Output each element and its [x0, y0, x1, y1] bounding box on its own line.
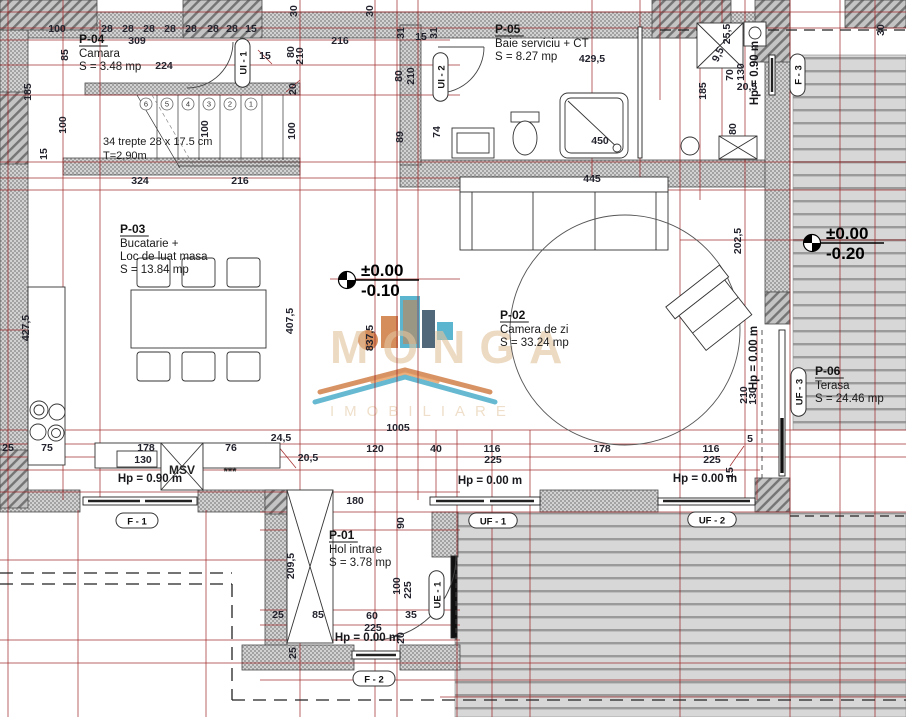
- dimension-label: 25: [2, 442, 14, 454]
- toilet-bowl: [513, 121, 537, 155]
- height-marker-label: Hp = 0.90 m: [749, 41, 761, 105]
- dimension-label: 309: [128, 35, 146, 47]
- room-label-line: Loc de luat masa: [120, 251, 208, 263]
- room-label-line: Camera de zi: [500, 324, 568, 336]
- stair-note-line2: T=2,90m: [103, 150, 147, 162]
- dimension-label: 20: [287, 83, 299, 95]
- room-id-label: P-02: [500, 308, 526, 322]
- dimension-label: 28: [143, 23, 155, 35]
- dimension-label: 120: [366, 443, 384, 455]
- dimension-label: 130: [735, 63, 747, 81]
- dimension-label: 450: [591, 135, 609, 147]
- dimension-label: 5: [747, 433, 753, 445]
- room-label-line: S = 13.84 mp: [120, 264, 189, 276]
- dimension-label: 30: [288, 5, 300, 17]
- cooktop-burner: [30, 424, 46, 440]
- armchair: [666, 265, 756, 353]
- dimension-label: 85: [312, 609, 324, 621]
- level-marker-quadrant: [347, 280, 356, 289]
- step-number: 1: [249, 100, 253, 109]
- dimension-label: 180: [346, 495, 364, 507]
- stars-label: ***: [224, 466, 238, 478]
- dimension-label: 178: [593, 443, 611, 455]
- dimension-label: 100: [199, 120, 211, 138]
- chair: [227, 258, 260, 287]
- room-label-line: Bucatarie +: [120, 238, 179, 250]
- room-id-label: P-06: [815, 364, 841, 378]
- room-label-line: S = 8.27 mp: [495, 51, 557, 63]
- room-label-line: S = 3.78 mp: [329, 557, 391, 569]
- sofa-seat: [460, 192, 668, 250]
- level-marker: ±0.00-0.10: [339, 261, 420, 300]
- opening-tag-label: F - 2: [364, 675, 384, 686]
- opening-tag: F - 3: [790, 54, 805, 96]
- level-below-value: -0.10: [361, 281, 400, 300]
- dimension-label: 216: [331, 35, 349, 47]
- step-number: 4: [186, 100, 190, 109]
- dimension-label: 216: [231, 175, 249, 187]
- chair: [227, 352, 260, 381]
- opening-tag-label: F - 3: [794, 65, 805, 85]
- room-id-label: P-01: [329, 528, 355, 542]
- dimension-label: 89: [394, 131, 406, 143]
- room-label-line: Baie serviciu + CT: [495, 38, 589, 50]
- dimension-label: 1005: [386, 422, 410, 434]
- opening-tag: UF - 2: [688, 512, 736, 527]
- opening-tag-label: UI - 2: [437, 65, 448, 88]
- opening-tag: UI - 1: [235, 39, 250, 87]
- dimension-label: 31: [395, 27, 407, 39]
- room-label-line: S = 3.48 mp: [79, 61, 141, 73]
- dimension-label: 837,5: [364, 325, 376, 351]
- dimension-label: 15: [38, 148, 50, 160]
- cooktop-burner: [49, 404, 65, 420]
- dimension-label: 25,5: [721, 24, 733, 45]
- opening-tag: F - 1: [116, 513, 158, 528]
- toilet-tank: [511, 112, 539, 122]
- opening-tag: UI - 2: [433, 53, 448, 101]
- dimension-label: 35: [405, 609, 417, 621]
- opening-tag-label: UI - 1: [239, 51, 250, 75]
- dimension-label: 80: [727, 123, 739, 135]
- opening-tag-label: UF - 1: [480, 517, 507, 528]
- dimension-label: 30: [364, 5, 376, 17]
- watermark-logo: MONGA IMOBILIARE: [315, 296, 576, 420]
- height-marker-label: Hp = 0.00 m: [335, 632, 399, 644]
- dimension-label: 224: [155, 60, 173, 72]
- sofa-back: [460, 177, 668, 192]
- level-marker-quadrant: [339, 272, 348, 281]
- counter-segment: [203, 443, 280, 468]
- dimension-label: 85: [59, 49, 71, 61]
- room-label-line: Terasa: [815, 380, 850, 392]
- height-marker-label: Hp = 0.90 m: [118, 473, 182, 485]
- opening-tag: F - 2: [353, 671, 395, 686]
- opening-tag-label: UE - 1: [433, 581, 444, 609]
- dimension-label: 225: [484, 454, 502, 466]
- watermark-subword: IMOBILIARE: [330, 403, 516, 420]
- dimension-label: 74: [431, 126, 443, 138]
- dimension-label: 15: [259, 50, 271, 62]
- dimension-label: 225: [402, 581, 414, 599]
- dimension-label: 15: [415, 31, 427, 43]
- step-number: 2: [228, 100, 232, 109]
- dining-table: [131, 290, 266, 348]
- dimension-label: 427,5: [20, 315, 32, 341]
- opening-tag: UF - 1: [469, 513, 517, 528]
- dimension-label: 324: [131, 175, 149, 187]
- dimension-label: 178: [137, 442, 155, 454]
- dimension-label: 185: [22, 83, 34, 101]
- room-label-line: S = 24.46 mp: [815, 393, 884, 405]
- step-number: 3: [207, 100, 211, 109]
- dimension-label: 28: [226, 23, 238, 35]
- logo-roof-lines: [315, 370, 495, 402]
- floor-plan-drawing: MONGA IMOBILIARE: [0, 0, 906, 717]
- shower-drain: [613, 144, 621, 152]
- chair: [137, 352, 170, 381]
- height-marker-label: Hp = 0.00 m: [673, 473, 737, 485]
- dimension-label: 60: [366, 610, 378, 622]
- dimension-label: 210: [405, 67, 417, 85]
- dimension-label: 429,5: [579, 53, 605, 65]
- dimension-label: 76: [225, 442, 237, 454]
- dimension-label: 407,5: [284, 308, 296, 334]
- dimension-label: 25: [287, 647, 299, 659]
- level-above-value: ±0.00: [361, 261, 403, 280]
- dimension-label: 28: [185, 23, 197, 35]
- dimension-label: 225: [703, 454, 721, 466]
- room-label-line: Camara: [79, 48, 121, 60]
- dimension-label: 28: [207, 23, 219, 35]
- dimension-label: 209,5: [285, 553, 297, 579]
- level-below-value: -0.20: [826, 244, 865, 263]
- opening-tag-label: UF - 2: [699, 516, 725, 527]
- opening-tag-label: UF - 3: [795, 379, 806, 405]
- dimension-label: 25: [272, 609, 284, 621]
- dimension-label: 445: [583, 173, 601, 185]
- opening-tag: UE - 1: [429, 571, 444, 619]
- dimension-label: 20,5: [298, 452, 319, 464]
- dimension-label: 100: [48, 23, 66, 35]
- dimension-label: 24,5: [271, 432, 292, 444]
- dimension-label: 40: [430, 443, 442, 455]
- dimension-label: 185: [697, 82, 709, 100]
- dimension-label: 210: [294, 47, 306, 65]
- dimension-label: 30: [875, 24, 887, 36]
- step-number: 5: [165, 100, 169, 109]
- height-marker-label: Hp = 0.00 m: [748, 326, 760, 390]
- stair-note-line1: 34 trepte 28 x 17.5 cm: [103, 136, 212, 148]
- dimension-label: 31: [428, 27, 440, 39]
- chair: [182, 352, 215, 381]
- opening-tag-label: F - 1: [127, 517, 147, 528]
- dimension-label: 75: [41, 442, 53, 454]
- level-above-value: ±0.00: [826, 224, 868, 243]
- dimension-label: 202,5: [732, 228, 744, 254]
- room-id-label: P-05: [495, 22, 521, 36]
- dimension-label: 28: [122, 23, 134, 35]
- dimension-label: 130: [134, 454, 152, 466]
- floor-drain: [681, 137, 699, 155]
- dimension-label: 15: [245, 23, 257, 35]
- room-id-label: P-04: [79, 32, 105, 46]
- height-marker-label: Hp = 0.00 m: [458, 475, 522, 487]
- dimension-label: 90: [395, 517, 407, 529]
- room-label-line: S = 33.24 mp: [500, 337, 569, 349]
- opening-tag: UF - 3: [791, 368, 806, 416]
- dimension-label: 80: [393, 70, 405, 82]
- dimension-label: 100: [57, 116, 69, 134]
- step-number: 6: [144, 100, 148, 109]
- room-id-label: P-03: [120, 222, 146, 236]
- dimension-label: 100: [286, 122, 298, 140]
- room-label-line: Hol intrare: [329, 544, 382, 556]
- dimension-label: 28: [164, 23, 176, 35]
- floor-plan-canvas: MONGA IMOBILIARE: [0, 0, 906, 717]
